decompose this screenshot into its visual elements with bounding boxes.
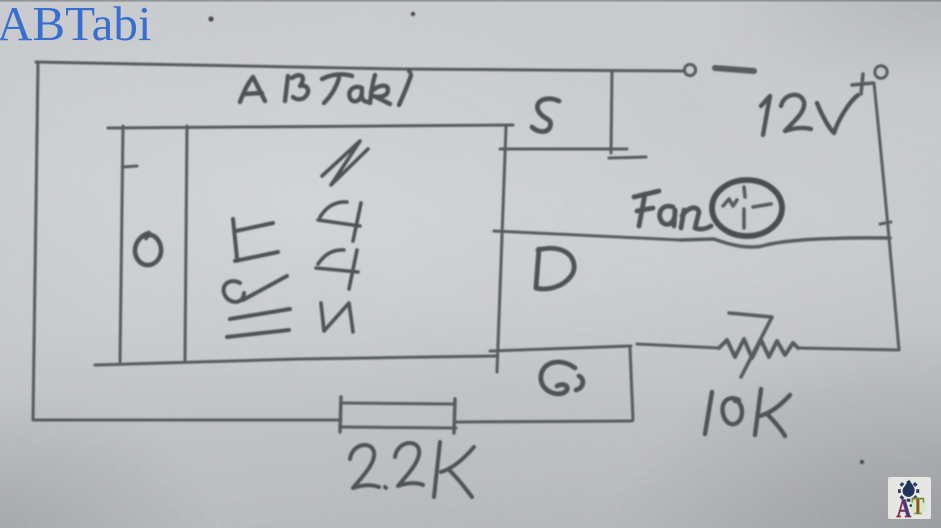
svg-text:A: A bbox=[897, 495, 912, 524]
svg-text:T: T bbox=[912, 493, 925, 520]
